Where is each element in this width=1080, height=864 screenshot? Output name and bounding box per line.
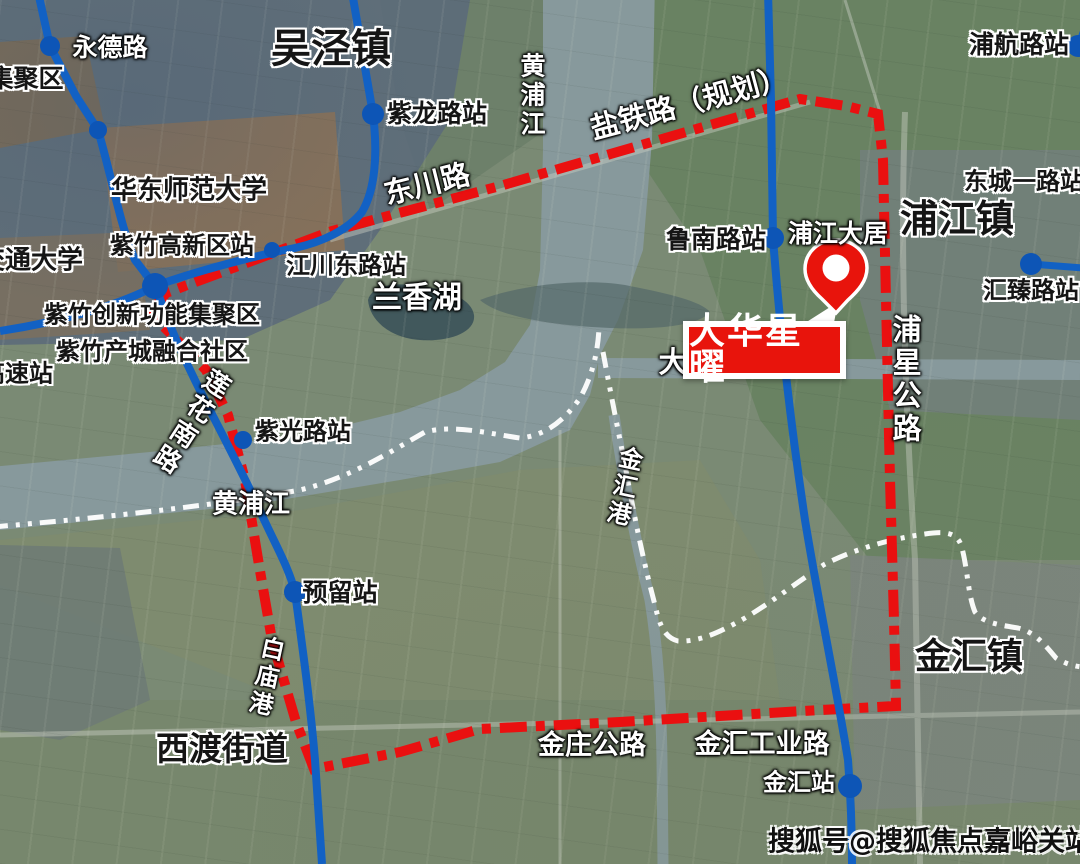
- huizhen-dot: [1020, 253, 1042, 275]
- junction-dot: [142, 273, 168, 299]
- zilong-dot: [362, 103, 384, 125]
- channel-line-jinhuigang: [603, 352, 1080, 667]
- jinhui-dot: [838, 774, 862, 798]
- location-pin-icon: [805, 240, 867, 313]
- metro-line-branch-west: [0, 286, 155, 331]
- channel-line-huangpu: [0, 328, 599, 527]
- watermark: 搜狐号@搜狐焦点嘉峪关站: [768, 820, 1080, 859]
- lunan-dot: [762, 227, 784, 249]
- metro-line-west: [38, 0, 322, 864]
- yongde-dot: [40, 36, 60, 56]
- project-name: 大华星曜: [689, 327, 840, 373]
- mid-dot: [89, 121, 107, 139]
- metro-line-east: [768, 0, 852, 864]
- metro-line-north: [155, 0, 375, 286]
- yuliu-dot: [284, 581, 306, 603]
- project-callout: 大华星曜: [683, 321, 846, 379]
- map-overlay: [0, 0, 1080, 864]
- ziguang-dot: [234, 431, 252, 449]
- jiangchuan-dot: [264, 242, 280, 258]
- satellite-map: 集聚区永德路吴泾镇紫龙路站黄浦江盐铁路（规划）东川路浦航路站东城一路站浦江镇汇臻…: [0, 0, 1080, 864]
- puhang-dot: [1067, 35, 1080, 57]
- boundary-line: [152, 99, 896, 769]
- station-dots: [40, 35, 1080, 798]
